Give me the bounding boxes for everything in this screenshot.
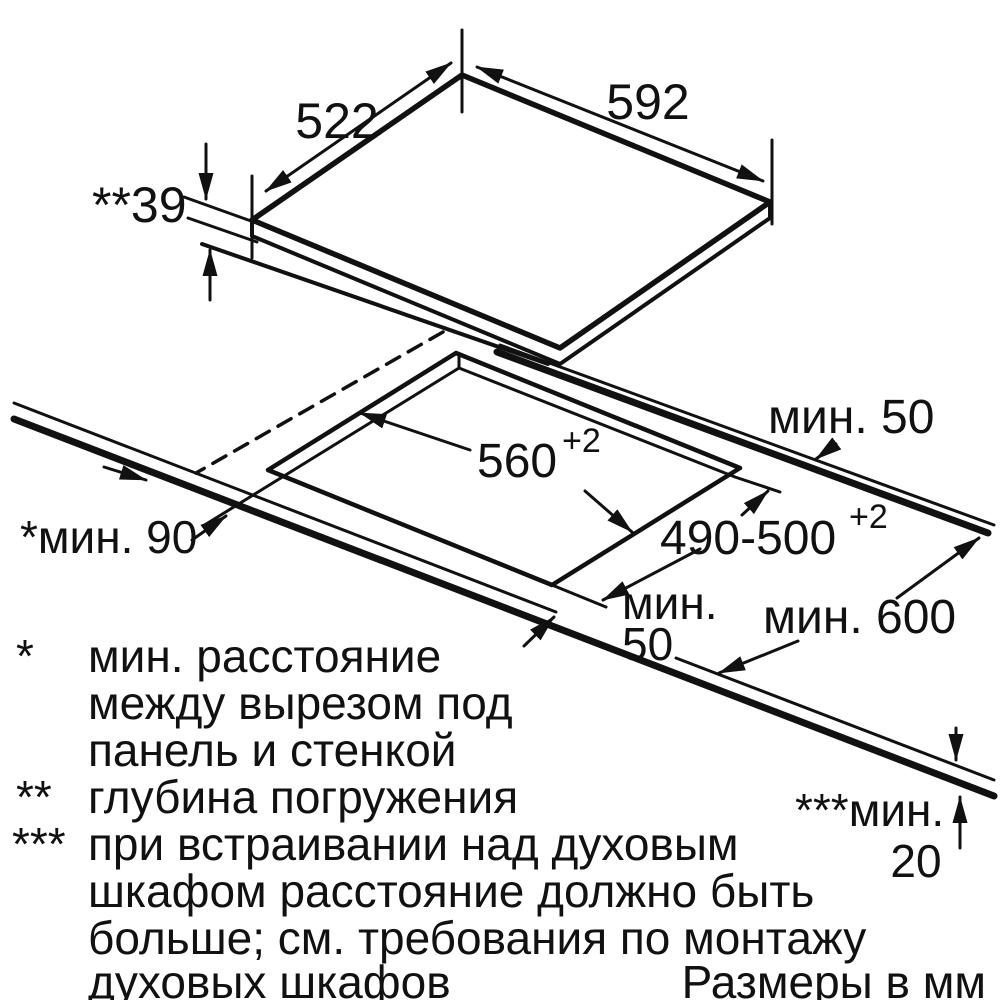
dim-label-490-500-sup: +2 <box>849 498 888 536</box>
label-below-clearance-prefix: ***мин. <box>795 784 944 836</box>
dim-label-490-500: 490-500 <box>660 512 836 565</box>
footnote-3-line-1: при встраивании над духовым <box>88 818 739 870</box>
footnote-marker-2: ** <box>16 771 52 823</box>
worktop-front-edge-top-left <box>14 403 556 612</box>
arrow-600-up <box>897 538 979 598</box>
arrow-560-right <box>585 491 632 532</box>
units-caption: Размеры в мм <box>682 956 986 1000</box>
dim-label-560-sup: +2 <box>562 422 601 460</box>
footnotes-block: * мин. расстояние между вырезом под пане… <box>12 630 866 1000</box>
diagram-canvas: 522 592 **39 <box>0 0 1000 1000</box>
dim-side-clearance: *мин. 90 <box>20 467 226 563</box>
arrow-600-down <box>719 641 798 673</box>
label-below-clearance-value: 20 <box>890 835 941 887</box>
worktop-front-edge-top-right <box>676 658 994 780</box>
footnote-1-line-2: между вырезом под <box>88 677 513 729</box>
cutout-right-extension <box>735 477 780 492</box>
label-front-clearance-line2: 50 <box>622 618 673 670</box>
footnote-1-line-1: мин. расстояние <box>88 630 441 682</box>
installation-diagram: 522 592 **39 <box>0 0 1000 1000</box>
label-side-clearance: *мин. 90 <box>20 511 197 563</box>
label-rear-clearance: мин. 50 <box>768 391 934 444</box>
arrow-rear-50 <box>816 444 836 459</box>
footnote-1-line-3: панель и стенкой <box>88 724 456 776</box>
immersion-ref-line-top <box>184 197 251 221</box>
dim-immersion-depth: **39 <box>92 144 210 300</box>
footnote-3-line-4: духовых шкафов <box>88 956 451 1000</box>
immersion-ref-line-mid <box>188 218 257 242</box>
cutout-bottom-extension <box>552 585 606 607</box>
dim-cutout-width: 560 +2 <box>360 413 632 532</box>
footnote-3-line-2: шкафом расстояние должно быть <box>88 865 814 917</box>
dim-rear-clearance: мин. 50 <box>768 391 934 459</box>
dim-label-592: 592 <box>606 74 689 130</box>
footnote-2-line-1: глубина погружения <box>88 771 518 823</box>
footnote-marker-3: *** <box>12 818 66 870</box>
dim-label-560: 560 <box>477 435 557 488</box>
footnote-marker-1: * <box>16 630 34 682</box>
dim-label-522: 522 <box>295 93 378 149</box>
arrow-560-left <box>360 413 470 450</box>
label-worktop-depth: мин. 600 <box>763 591 956 644</box>
dim-label-39: **39 <box>92 177 187 233</box>
